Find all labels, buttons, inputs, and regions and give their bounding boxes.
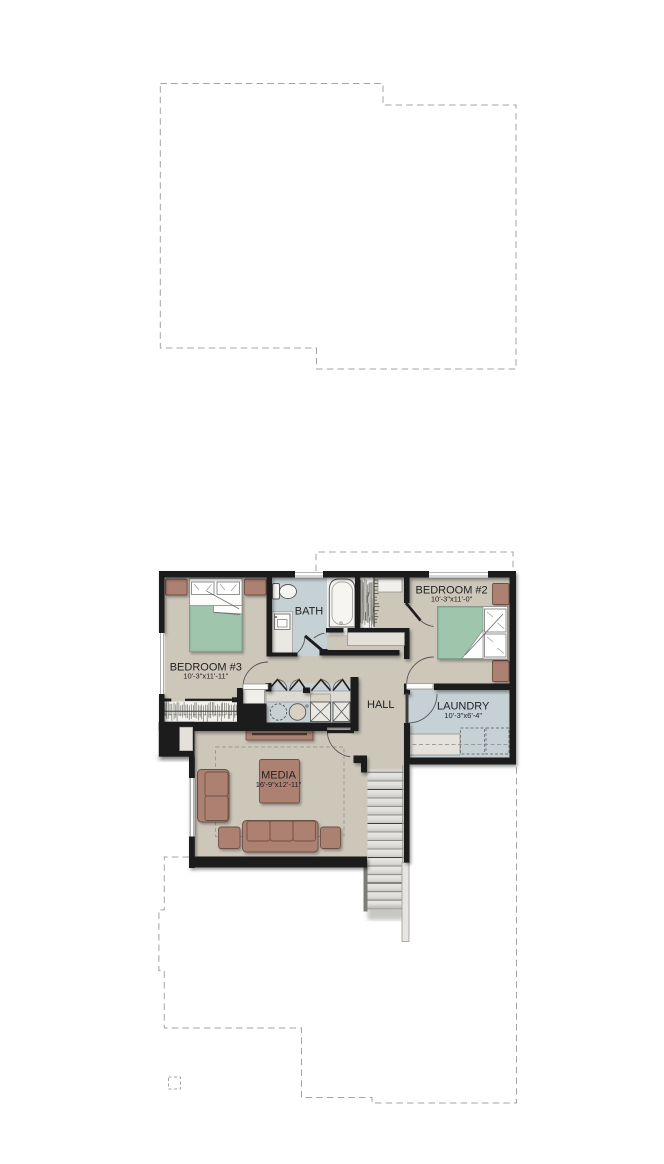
svg-text:10'-3"x11'-11": 10'-3"x11'-11": [183, 672, 228, 681]
svg-text:10'-3"x11'-0": 10'-3"x11'-0": [431, 595, 473, 604]
svg-text:HALL: HALL: [367, 699, 395, 711]
svg-text:16'-9"x12'-11": 16'-9"x12'-11": [256, 780, 302, 789]
svg-text:BATH: BATH: [295, 606, 324, 618]
svg-text:10'-3"x6'-4": 10'-3"x6'-4": [444, 711, 482, 720]
